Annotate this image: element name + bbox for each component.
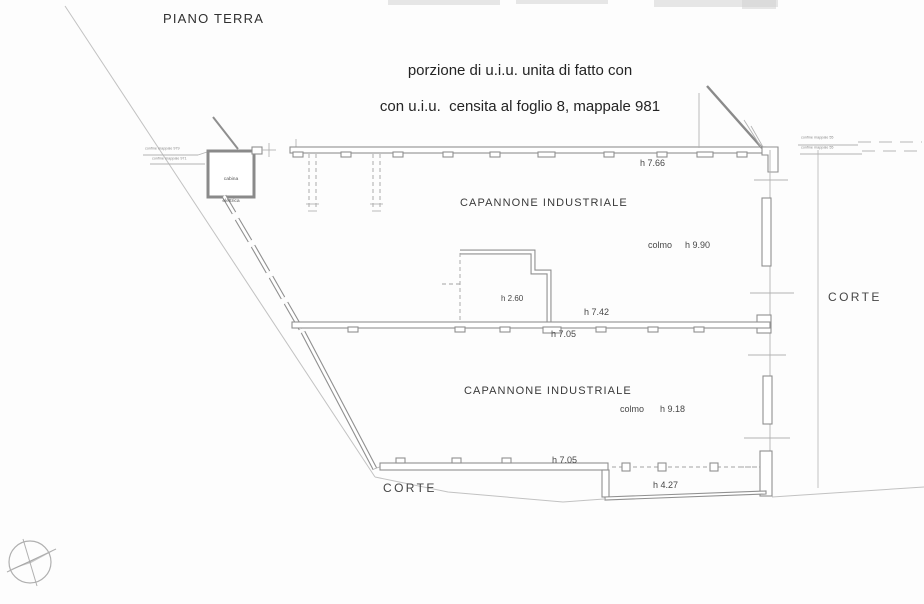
north-symbol-icon	[7, 539, 56, 586]
inner-room-outline	[442, 252, 549, 322]
annotation-line-1: porzione di u.i.u. unita di fatto con	[300, 63, 740, 80]
left-diagonal-wall-lower	[303, 332, 382, 469]
boundary-note-right-1: confine mappale 55	[801, 136, 833, 140]
canopy-height-label: h 4.27	[653, 481, 678, 491]
cabina-elettrica-label: cabina elettrica	[213, 161, 249, 220]
top-wall	[290, 147, 766, 157]
door-guide-dashes	[306, 154, 383, 211]
wall-height-705-bottom-label: h 7.05	[552, 456, 577, 466]
lower-ridge-height-label: h 9.18	[660, 405, 685, 415]
wall-height-742-label: h 7.42	[584, 308, 609, 318]
page-title: PIANO TERRA	[163, 12, 264, 26]
upper-eave-height-label: h 7.66	[640, 159, 665, 169]
courtyard-right-label: CORTE	[828, 291, 882, 304]
boundary-note-left-2: confine mappale 971	[152, 157, 187, 161]
interior-dividing-wall	[292, 322, 770, 333]
wall-height-705-mid-label: h 7.05	[551, 330, 576, 340]
courtyard-bottom-label: CORTE	[383, 482, 437, 495]
boundary-note-right-2: confine mappale 55	[801, 146, 833, 150]
lower-hall-name: CAPANNONE INDUSTRIALE	[464, 385, 632, 397]
upper-ridge-height-label: h 9.90	[685, 241, 710, 251]
cabina-label-line2: elettrica	[213, 198, 249, 205]
floor-plan-page: PIANO TERRA porzione di u.i.u. unita di …	[0, 0, 924, 604]
canopy-post-line	[612, 463, 760, 471]
cabina-label-line1: cabina	[213, 176, 249, 183]
annotation-line-2: con u.i.u. censita al foglio 8, mappale …	[300, 99, 740, 116]
upper-hall-name: CAPANNONE INDUSTRIALE	[460, 197, 628, 209]
scan-artifacts	[388, 0, 778, 9]
lower-ridge-word: colmo	[620, 405, 644, 415]
boundary-note-left-1: confine mappale 979	[145, 147, 180, 151]
inner-room-height-label: h 2.60	[501, 295, 523, 304]
upper-ridge-word: colmo	[648, 241, 672, 251]
floor-plan-drawing	[0, 0, 924, 604]
